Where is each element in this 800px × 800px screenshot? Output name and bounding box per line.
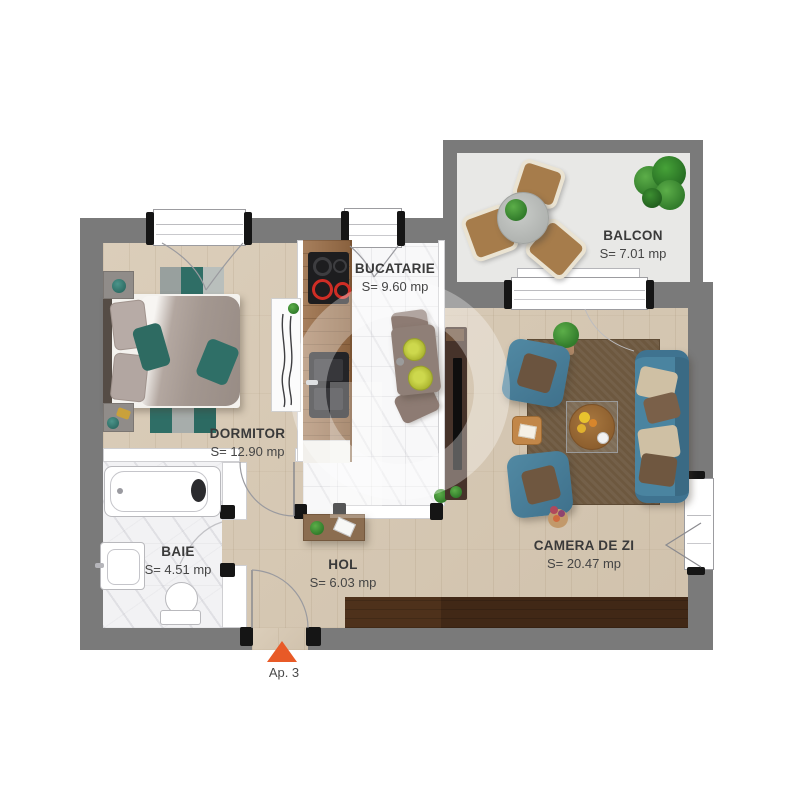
wall-right xyxy=(688,282,713,650)
wall-balcony-top xyxy=(443,140,703,153)
wardrobe xyxy=(271,298,301,412)
faucet-icon xyxy=(95,563,104,568)
wall-bedroom-bathroom xyxy=(103,448,240,462)
plant-icon xyxy=(107,417,119,429)
coffee-table xyxy=(569,404,615,450)
wall-cap xyxy=(687,471,705,479)
toilet xyxy=(160,582,201,627)
counter-cabinet xyxy=(303,440,350,463)
wall-cap xyxy=(430,503,443,520)
burner xyxy=(313,257,332,276)
hall-console xyxy=(303,514,365,541)
sofa xyxy=(635,350,689,503)
wall-bottom-right xyxy=(308,628,713,650)
tv-console xyxy=(445,327,467,500)
wall-cap xyxy=(244,212,252,245)
flowers xyxy=(577,424,586,433)
decor-gold xyxy=(116,407,131,420)
tv xyxy=(453,358,462,470)
flowers xyxy=(550,506,558,514)
wall-balcony-left xyxy=(443,140,457,282)
wall-cap xyxy=(504,280,512,309)
wall-cap xyxy=(220,563,235,577)
plant-icon xyxy=(288,303,299,314)
kitchen-sink xyxy=(309,352,349,418)
apartment-label-text: Ap. 3 xyxy=(269,665,299,680)
side-table xyxy=(512,416,542,445)
sofa-pillow xyxy=(638,453,678,488)
wall-cap xyxy=(220,505,235,519)
bedroom-window xyxy=(153,209,246,246)
kitchen-window xyxy=(344,208,402,248)
nightstand xyxy=(103,271,134,299)
bathtub-drain xyxy=(191,479,206,502)
toilet-tank xyxy=(160,610,201,625)
living-bottom-cabinet xyxy=(345,597,688,628)
flowers xyxy=(553,515,560,522)
bathroom-sink xyxy=(100,542,145,590)
flowers xyxy=(589,419,597,427)
armchair xyxy=(500,337,572,409)
envelope-icon xyxy=(333,517,356,538)
wall-cap xyxy=(646,280,654,309)
faucet-icon xyxy=(306,380,318,385)
bedroom-rug-bottom xyxy=(150,404,216,433)
sink-bowl xyxy=(107,549,140,585)
balcony-table xyxy=(497,192,549,244)
faucet-icon xyxy=(117,488,123,494)
rug-patch xyxy=(150,404,172,433)
decor-box xyxy=(446,329,464,341)
kitchen-counter xyxy=(303,240,352,462)
plate xyxy=(407,364,434,391)
living-balcony-window xyxy=(511,277,648,310)
cup xyxy=(396,357,405,366)
wall-cap xyxy=(146,212,154,245)
burner xyxy=(312,279,333,300)
wall-cap xyxy=(240,627,253,646)
armchair-pillow xyxy=(520,464,561,505)
sink-basin xyxy=(314,388,343,410)
balcony-plant xyxy=(634,156,686,212)
plate xyxy=(402,337,427,362)
cooktop xyxy=(308,252,349,304)
plant-foliage xyxy=(553,322,579,348)
plant-icon xyxy=(505,199,527,221)
flower-pot xyxy=(546,502,572,528)
sink-basin xyxy=(314,359,343,381)
bathtub xyxy=(104,466,221,517)
wall-cap xyxy=(397,211,405,246)
floor-plan: DORMITOR S= 12.90 mp BUCATARIE S= 9.60 m… xyxy=(0,0,800,800)
apartment-label: Ap. 3 xyxy=(255,663,313,683)
plant-icon xyxy=(112,279,126,293)
book xyxy=(518,424,537,440)
burner xyxy=(334,282,351,299)
rug-patch xyxy=(172,404,194,433)
wall-cap xyxy=(687,567,705,575)
wall-balcony-right xyxy=(690,140,703,282)
plant-icon xyxy=(310,521,324,535)
burner xyxy=(333,259,347,273)
wall-cap xyxy=(306,627,321,646)
plant-icon xyxy=(450,486,462,498)
cup xyxy=(597,432,609,444)
rug-patch xyxy=(194,404,216,433)
wall-bottom-left xyxy=(80,628,252,650)
plant-foliage xyxy=(642,188,662,208)
bed xyxy=(103,294,240,408)
dining-table xyxy=(391,324,442,396)
entrance-marker-icon xyxy=(267,641,297,662)
armchair-pillow xyxy=(516,352,558,394)
nightstand xyxy=(103,403,134,432)
